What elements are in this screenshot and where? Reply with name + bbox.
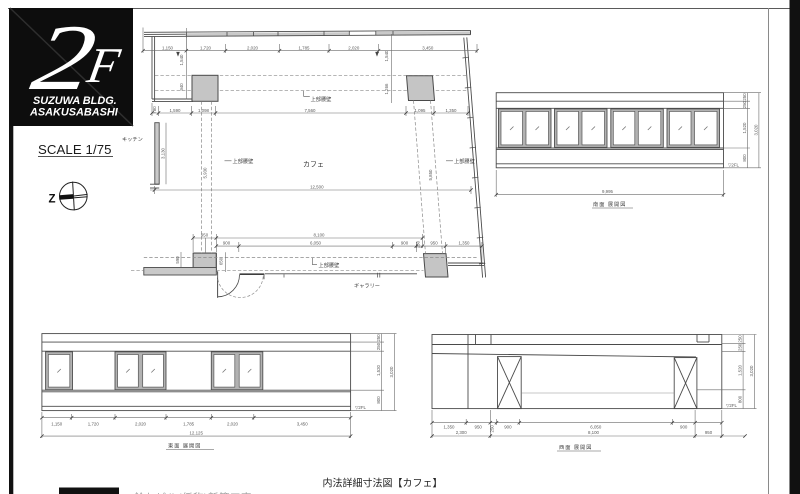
svg-text:250: 250 [489, 425, 494, 433]
svg-text:西面 展開図: 西面 展開図 [559, 444, 592, 451]
svg-text:上部腰壁: 上部腰壁 [233, 157, 254, 165]
svg-text:250: 250 [738, 343, 743, 351]
svg-text:上部腰壁: 上部腰壁 [319, 261, 340, 269]
svg-text:5,850: 5,850 [428, 169, 433, 181]
svg-text:1,520: 1,520 [738, 364, 743, 376]
svg-text:650: 650 [219, 257, 224, 265]
svg-text:2,020: 2,020 [135, 422, 147, 427]
svg-text:SCALE 1/75: SCALE 1/75 [38, 142, 112, 157]
svg-text:8,100: 8,100 [588, 430, 600, 435]
svg-text:1,785: 1,785 [299, 45, 311, 50]
svg-text:2,300: 2,300 [456, 430, 468, 435]
svg-text:6,050: 6,050 [310, 240, 322, 245]
svg-text:12,500: 12,500 [310, 184, 324, 189]
svg-text:1,350: 1,350 [444, 425, 456, 430]
svg-text:250: 250 [376, 342, 381, 350]
svg-text:ギャラリー: ギャラリー [354, 283, 380, 290]
svg-text:6,050: 6,050 [590, 425, 602, 430]
svg-text:1,350: 1,350 [459, 240, 471, 245]
svg-text:250: 250 [742, 100, 747, 108]
svg-text:950: 950 [430, 240, 438, 245]
svg-text:2,020: 2,020 [247, 45, 259, 50]
svg-text:7,560: 7,560 [305, 108, 317, 113]
svg-text:250: 250 [742, 93, 747, 101]
svg-text:SUZUWA BLDG.: SUZUWA BLDG. [33, 95, 117, 107]
svg-text:9,995: 9,995 [602, 189, 614, 194]
svg-text:1,266: 1,266 [384, 83, 389, 95]
svg-text:250: 250 [376, 334, 381, 342]
svg-text:250: 250 [738, 335, 743, 343]
svg-text:8,100: 8,100 [314, 232, 326, 237]
svg-text:900: 900 [401, 240, 409, 245]
svg-text:800: 800 [742, 154, 747, 162]
svg-text:1,150: 1,150 [51, 422, 63, 427]
svg-text:900: 900 [680, 425, 688, 430]
svg-text:12,125: 12,125 [189, 430, 203, 435]
svg-text:1,150: 1,150 [162, 45, 174, 50]
svg-text:1,350: 1,350 [446, 108, 458, 113]
svg-text:250: 250 [416, 240, 421, 248]
svg-text:上部腰壁: 上部腰壁 [311, 95, 332, 103]
svg-text:940: 940 [179, 83, 184, 91]
svg-text:▽2FL: ▽2FL [726, 403, 738, 408]
svg-text:Z: Z [49, 194, 56, 206]
svg-text:1,520: 1,520 [376, 364, 381, 376]
svg-text:900: 900 [504, 425, 512, 430]
svg-text:3,020: 3,020 [389, 366, 394, 378]
svg-text:950: 950 [201, 232, 209, 237]
svg-text:1,098: 1,098 [198, 108, 210, 113]
svg-text:▽2FL: ▽2FL [355, 405, 367, 410]
svg-text:5,930: 5,930 [203, 167, 208, 179]
svg-text:キッチン: キッチン [122, 136, 143, 143]
svg-text:1,590: 1,590 [170, 108, 182, 113]
svg-text:800: 800 [738, 395, 743, 403]
svg-text:3,450: 3,450 [297, 422, 309, 427]
svg-text:590: 590 [175, 256, 180, 264]
svg-text:950: 950 [705, 430, 713, 435]
svg-text:900: 900 [223, 240, 231, 245]
svg-text:カフェ: カフェ [303, 161, 324, 169]
svg-text:内法詳細寸法図【カフェ】: 内法詳細寸法図【カフェ】 [323, 477, 443, 490]
svg-text:1,540: 1,540 [179, 54, 184, 66]
svg-text:2,020: 2,020 [348, 45, 360, 50]
svg-text:1,720: 1,720 [200, 45, 212, 50]
svg-text:上部腰壁: 上部腰壁 [454, 157, 475, 165]
svg-text:3,020: 3,020 [753, 124, 758, 136]
svg-text:1,095: 1,095 [415, 108, 427, 113]
svg-text:東面 展開図: 東面 展開図 [168, 442, 201, 450]
svg-text:1,720: 1,720 [88, 422, 100, 427]
svg-text:800: 800 [376, 396, 381, 404]
svg-text:3,020: 3,020 [749, 365, 754, 377]
svg-text:3,130: 3,130 [161, 147, 166, 159]
svg-text:▽2FL: ▽2FL [728, 163, 740, 168]
svg-text:950: 950 [475, 425, 483, 430]
svg-text:1,520: 1,520 [742, 122, 747, 134]
svg-text:ASAKUSABASHI: ASAKUSABASHI [29, 107, 119, 119]
svg-text:2,020: 2,020 [227, 422, 239, 427]
svg-text:3,450: 3,450 [422, 45, 434, 50]
svg-text:1,785: 1,785 [183, 422, 195, 427]
svg-text:南面 展開図: 南面 展開図 [593, 200, 626, 208]
svg-text:1,540: 1,540 [384, 50, 389, 62]
